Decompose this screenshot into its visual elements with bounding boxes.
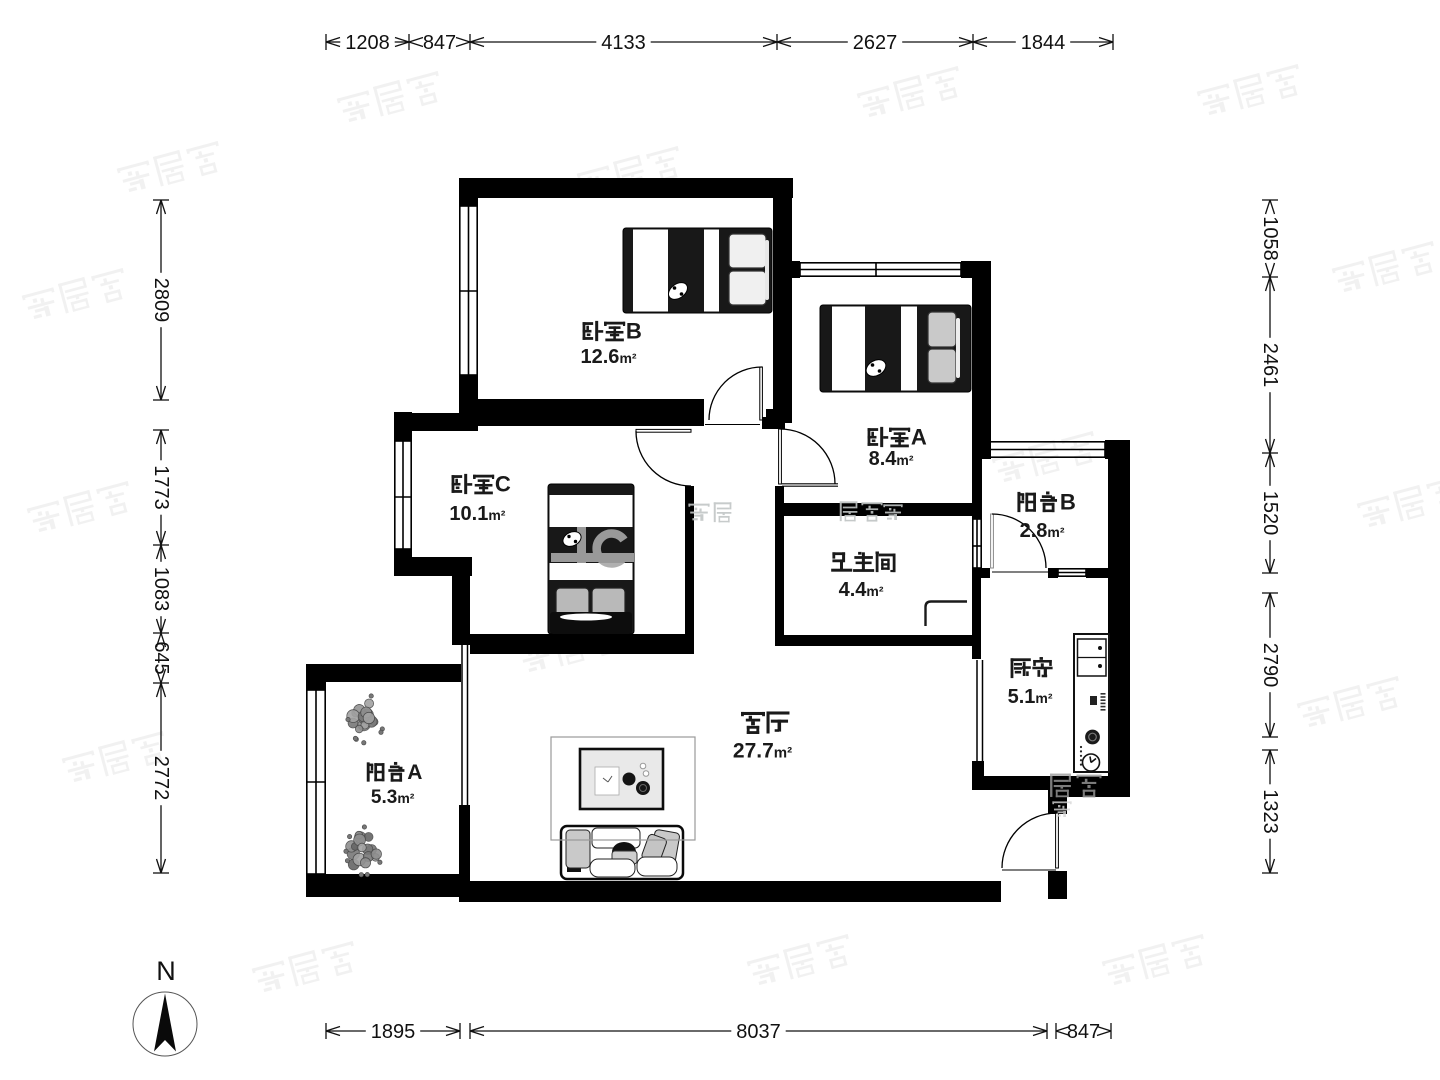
svg-text:10.1m²: 10.1m²: [449, 503, 505, 525]
svg-text:C: C: [495, 472, 511, 497]
svg-text:2772: 2772: [150, 756, 172, 801]
svg-text:1773: 1773: [150, 465, 172, 510]
svg-text:4.4m²: 4.4m²: [839, 579, 884, 601]
svg-text:847: 847: [1067, 1021, 1100, 1043]
svg-text:847: 847: [423, 32, 456, 54]
svg-text:12.6m²: 12.6m²: [581, 346, 637, 368]
svg-text:B: B: [626, 319, 642, 344]
svg-text:8.4m²: 8.4m²: [869, 448, 914, 470]
svg-text:645: 645: [150, 641, 172, 674]
svg-text:1058: 1058: [1259, 216, 1281, 261]
svg-text:A: A: [911, 425, 927, 450]
svg-text:1083: 1083: [150, 567, 172, 612]
svg-text:1520: 1520: [1259, 491, 1281, 536]
svg-text:1208: 1208: [345, 32, 390, 54]
svg-text:2809: 2809: [150, 278, 172, 323]
svg-text:8037: 8037: [736, 1021, 781, 1043]
svg-text:2461: 2461: [1259, 343, 1281, 388]
svg-text:4133: 4133: [601, 32, 646, 54]
svg-text:2790: 2790: [1259, 643, 1281, 688]
svg-text:5.3m²: 5.3m²: [371, 787, 415, 808]
svg-text:A: A: [407, 761, 422, 784]
svg-text:2627: 2627: [853, 32, 898, 54]
svg-text:B: B: [1060, 490, 1076, 515]
svg-text:1323: 1323: [1259, 789, 1281, 834]
svg-text:5.1m²: 5.1m²: [1008, 686, 1053, 708]
svg-text:N: N: [156, 956, 176, 986]
svg-text:2.8m²: 2.8m²: [1020, 520, 1065, 542]
svg-text:1895: 1895: [371, 1021, 416, 1043]
svg-text:1844: 1844: [1021, 32, 1066, 54]
